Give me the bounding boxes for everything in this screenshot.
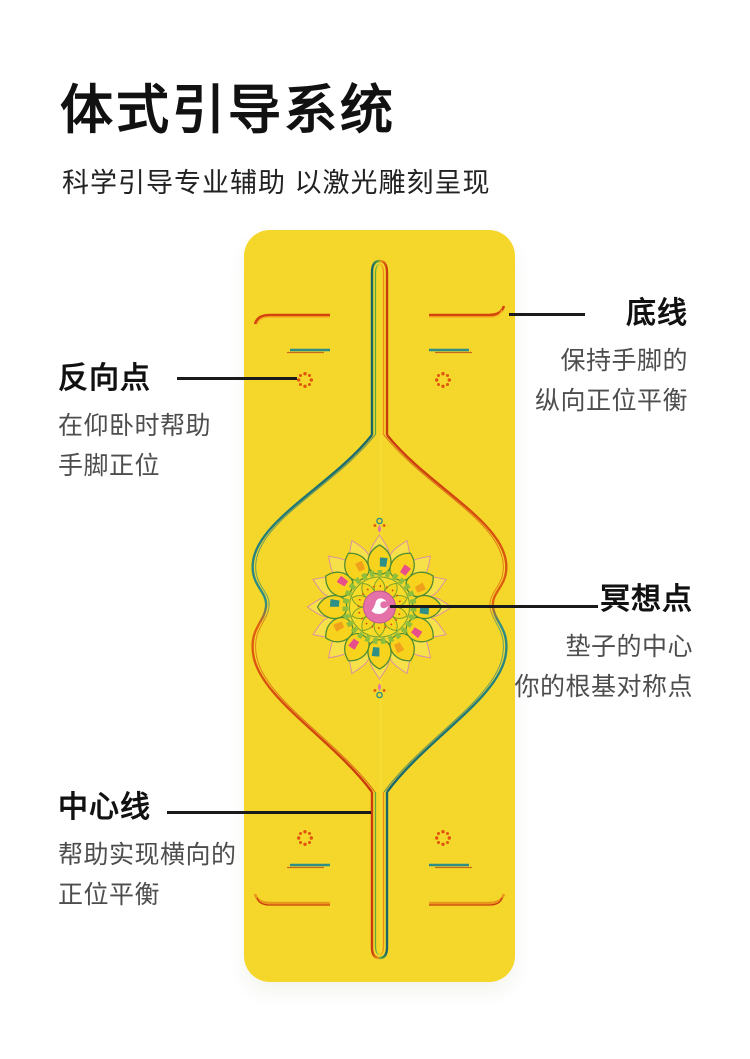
reverse-point-mark bbox=[435, 372, 451, 388]
center-guide-line bbox=[379, 435, 382, 952]
top-center-loop bbox=[372, 261, 387, 435]
callout-desc: 帮助实现横向的 正位平衡 bbox=[58, 835, 237, 915]
callout-reverse-point: 反向点 在仰卧时帮助 手脚正位 bbox=[58, 364, 211, 486]
page-title: 体式引导系统 bbox=[60, 82, 396, 140]
infographic-page: 体式引导系统 科学引导专业辅助 以激光雕刻呈现 bbox=[0, 0, 750, 1059]
callout-title: 冥想点 bbox=[514, 585, 693, 615]
reverse-point-mark bbox=[435, 830, 451, 846]
callout-center-line: 中心线 帮助实现横向的 正位平衡 bbox=[58, 793, 237, 915]
reverse-point-mark bbox=[297, 372, 313, 388]
callout-desc: 保持手脚的 纵向正位平衡 bbox=[535, 341, 688, 421]
callout-title: 反向点 bbox=[58, 364, 211, 394]
top-baseline-marks bbox=[255, 306, 504, 353]
callout-title: 底线 bbox=[535, 299, 688, 329]
callout-title: 中心线 bbox=[58, 793, 237, 823]
callout-desc: 垫子的中心 你的根基对称点 bbox=[514, 627, 693, 707]
callout-meditation-point: 冥想点 垫子的中心 你的根基对称点 bbox=[514, 585, 693, 707]
reverse-point-mark bbox=[297, 830, 313, 846]
callout-bottom-line: 底线 保持手脚的 纵向正位平衡 bbox=[535, 299, 688, 421]
callout-desc: 在仰卧时帮助 手脚正位 bbox=[58, 406, 211, 486]
page-subtitle: 科学引导专业辅助 以激光雕刻呈现 bbox=[62, 167, 491, 199]
